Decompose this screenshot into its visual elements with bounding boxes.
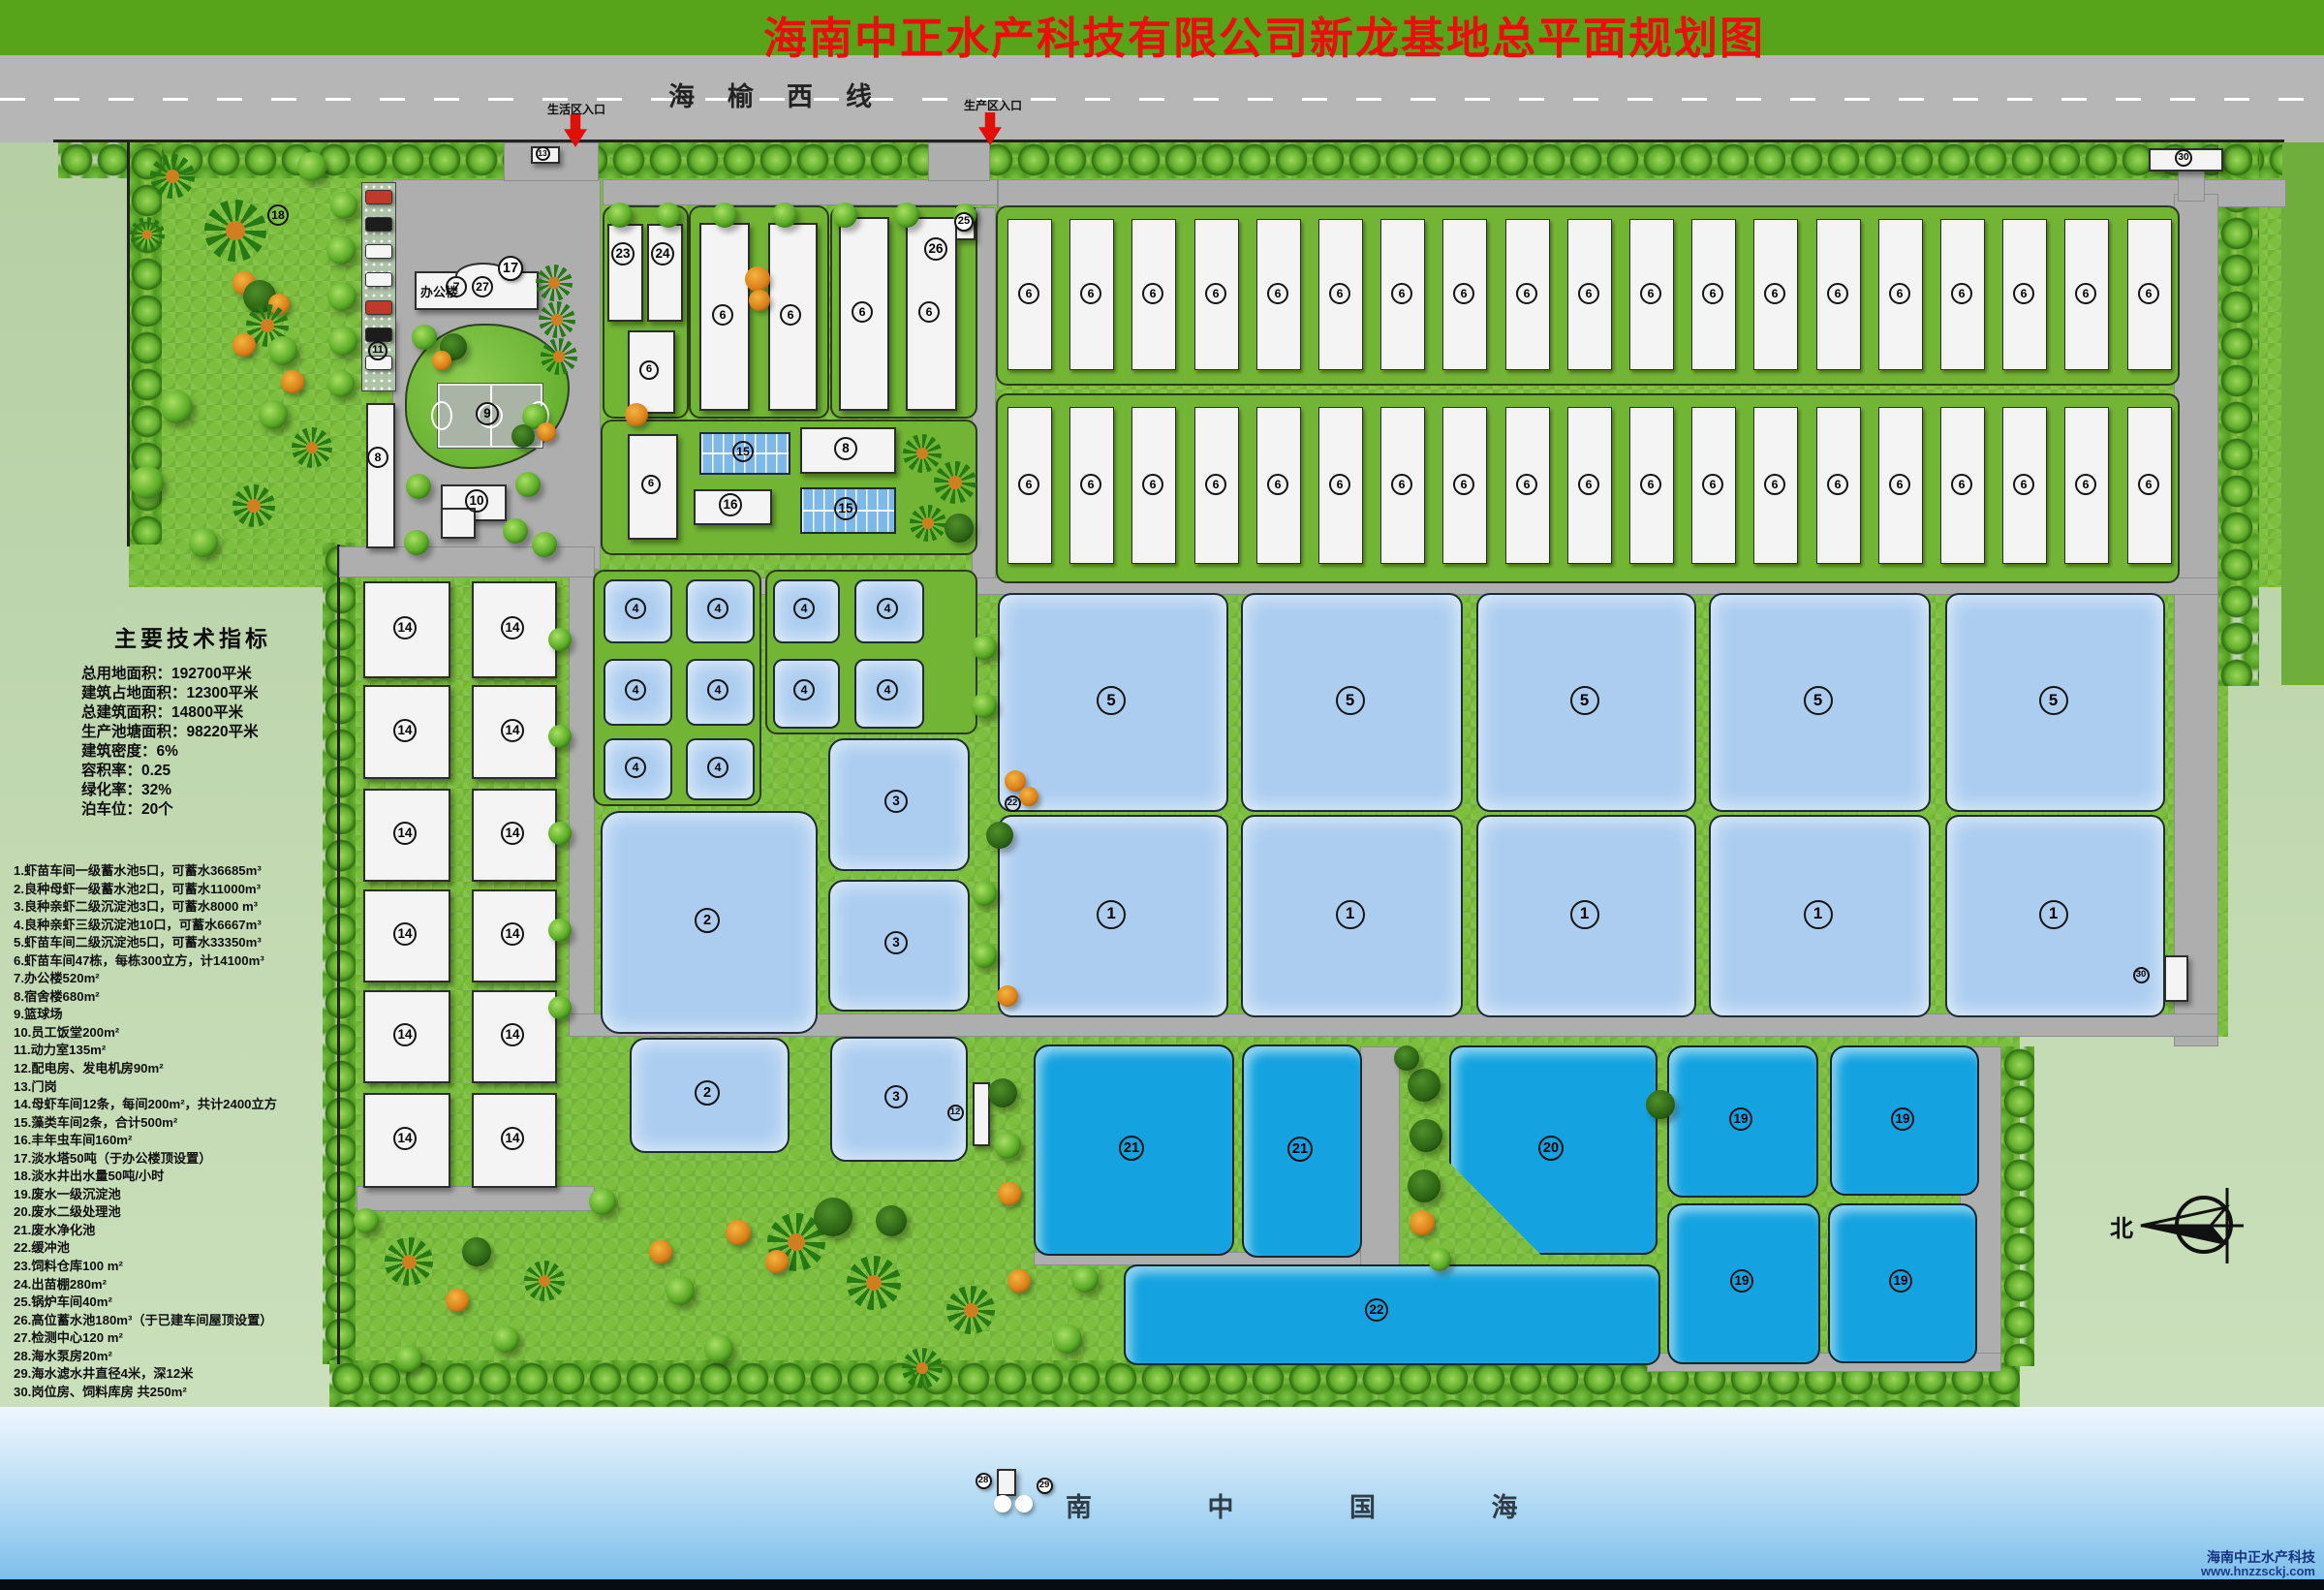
number-marker-5: 5	[1097, 686, 1126, 715]
note-line: 18.淡水井出水量50吨/小时	[14, 1168, 348, 1186]
bush	[328, 327, 357, 356]
parked-car	[365, 190, 392, 204]
number-marker-14: 14	[393, 822, 417, 845]
bush	[548, 725, 572, 748]
number-marker-6: 6	[1080, 283, 1101, 304]
bush	[548, 919, 572, 942]
legend-panel: 主要技术指标 总用地面积：192700平米建筑占地面积：12300平米总建筑面积…	[81, 620, 382, 820]
number-marker-1: 1	[1570, 900, 1599, 929]
bush	[412, 325, 437, 350]
number-marker-19: 19	[1730, 1269, 1753, 1293]
note-line: 21.废水净化池	[14, 1222, 348, 1240]
note-line: 26.高位蓄水池180m³（于已建车间屋顶设置）	[14, 1312, 348, 1330]
note-line: 15.藻类车间2条，合计500m²	[14, 1114, 348, 1133]
number-marker-4: 4	[707, 757, 728, 778]
note-line: 1.虾苗车间一级蓄水池5口，可蓄水36685m³	[14, 862, 348, 881]
number-marker-20: 20	[1538, 1136, 1564, 1161]
number-marker-22: 22	[1365, 1298, 1388, 1322]
bush	[131, 466, 164, 499]
bush	[656, 203, 681, 228]
palm-tree	[536, 265, 573, 301]
number-marker-2: 2	[695, 1080, 720, 1106]
number-marker-8: 8	[367, 447, 388, 468]
note-line: 14.母虾车间12条，每间200m²，共计2400立方	[14, 1096, 348, 1114]
note-line: 19.废水一级沉淀池	[14, 1186, 348, 1204]
palm-tree	[539, 301, 575, 338]
bush	[1053, 1325, 1082, 1354]
orange-shrub	[745, 266, 770, 292]
number-marker-3: 3	[884, 790, 908, 813]
court-left-arc	[431, 401, 452, 430]
orange-shrub	[726, 1220, 751, 1245]
bush	[972, 693, 997, 718]
orange-shrub	[1410, 1210, 1435, 1235]
number-marker-1: 1	[1804, 900, 1833, 929]
note-line: 16.丰年虫车间160m²	[14, 1132, 348, 1150]
orange-shrub	[281, 370, 304, 393]
note-line: 25.锅炉车间40m²	[14, 1294, 348, 1312]
number-marker-6: 6	[1142, 283, 1163, 304]
bush	[160, 390, 193, 423]
number-marker-16: 16	[719, 493, 742, 516]
number-marker-29: 29	[1037, 1478, 1053, 1494]
number-marker-6: 6	[1764, 474, 1785, 495]
notes-list: 1.虾苗车间一级蓄水池5口，可蓄水36685m³2.良种母虾一级蓄水池2口，可蓄…	[14, 862, 348, 1401]
number-marker-15: 15	[732, 441, 754, 462]
note-line: 3.良种亲虾二级沉淀池3口，可蓄水8000 m³	[14, 898, 348, 917]
number-marker-11: 11	[368, 341, 387, 360]
note-line: 8.宿舍楼680m²	[14, 988, 348, 1007]
bush	[268, 336, 297, 365]
internal-road	[928, 142, 990, 181]
bush	[327, 370, 355, 397]
number-marker-10: 10	[465, 489, 488, 513]
bush	[406, 474, 431, 499]
orange-shrub	[432, 351, 451, 370]
number-marker-6: 6	[1391, 283, 1412, 304]
number-marker-27: 27	[472, 276, 493, 297]
dark-bush	[1394, 1045, 1419, 1071]
bush	[189, 528, 218, 557]
number-marker-14: 14	[393, 1023, 417, 1046]
bush	[548, 628, 572, 651]
orange-shrub	[537, 422, 556, 442]
note-line: 22.缓冲池	[14, 1239, 348, 1258]
dark-bush	[1410, 1119, 1442, 1152]
number-marker-6: 6	[1578, 283, 1599, 304]
bush	[972, 635, 997, 660]
number-marker-4: 4	[707, 679, 728, 701]
legend-line: 生产池塘面积：98220平米	[81, 723, 382, 742]
number-marker-28: 28	[976, 1473, 992, 1489]
watermark-url: www.hnzzsckj.com	[2170, 1564, 2315, 1578]
dark-bush	[876, 1205, 907, 1236]
number-marker-4: 4	[793, 679, 815, 701]
palm-tree	[903, 434, 942, 473]
building	[647, 224, 683, 322]
bush	[503, 518, 528, 544]
seawater-well	[1015, 1495, 1033, 1512]
number-marker-6: 6	[1516, 283, 1537, 304]
number-marker-23: 23	[611, 242, 635, 265]
orange-shrub	[997, 985, 1018, 1007]
number-marker-5: 5	[2039, 686, 2068, 715]
number-marker-3: 3	[884, 1085, 908, 1108]
number-marker-6: 6	[2013, 474, 2034, 495]
parked-car	[365, 244, 392, 259]
number-marker-6: 6	[1764, 283, 1785, 304]
bush	[404, 530, 429, 555]
internal-road	[1360, 1046, 1400, 1265]
number-marker-14: 14	[501, 922, 524, 946]
legend-lines: 总用地面积：192700平米建筑占地面积：12300平米总建筑面积：14800平…	[81, 665, 382, 820]
number-marker-8: 8	[834, 437, 857, 460]
internal-road	[339, 546, 595, 577]
building	[366, 403, 395, 548]
number-marker-6: 6	[1951, 474, 1972, 495]
road-center-dashes	[0, 98, 2324, 101]
number-marker-9: 9	[476, 402, 499, 425]
number-marker-6: 6	[2138, 283, 2159, 304]
number-marker-6: 6	[1889, 283, 1910, 304]
tree-row	[2218, 141, 2259, 686]
number-marker-6: 6	[1267, 474, 1288, 495]
note-line: 2.良种母虾一级蓄水池2口，可蓄水11000m³	[14, 881, 348, 899]
orange-shrub	[749, 290, 770, 311]
palm-tree	[204, 200, 266, 262]
page-title: 海南中正水产科技有限公司新龙基地总平面规划图	[601, 3, 1928, 66]
note-line: 28.海水泵房20m²	[14, 1348, 348, 1366]
road-name-label: 海榆西线	[668, 76, 905, 113]
number-marker-6: 6	[780, 304, 801, 326]
orange-shrub	[625, 403, 648, 426]
dark-bush	[1408, 1069, 1441, 1102]
number-marker-6: 6	[1329, 474, 1350, 495]
number-marker-30: 30	[2175, 149, 2192, 167]
number-marker-14: 14	[393, 616, 417, 639]
note-line: 12.配电房、发电机房90m²	[14, 1060, 348, 1078]
building	[2164, 955, 2188, 1002]
number-marker-6: 6	[1453, 474, 1474, 495]
compass-north-label: 北	[2110, 1216, 2133, 1242]
number-marker-6: 6	[1640, 474, 1661, 495]
number-marker-22: 22	[1005, 795, 1021, 812]
number-marker-6: 6	[1267, 283, 1288, 304]
orange-shrub	[1019, 787, 1038, 806]
bush	[589, 1188, 616, 1215]
palm-tree	[232, 484, 275, 527]
number-marker-30: 30	[2133, 967, 2150, 983]
orange-shrub	[232, 333, 256, 357]
number-marker-6: 6	[639, 360, 659, 380]
note-line: 23.饲料仓库100 m²	[14, 1258, 348, 1276]
number-marker-6: 6	[1205, 283, 1226, 304]
bush	[894, 203, 919, 228]
number-marker-2: 2	[695, 908, 720, 933]
number-marker-3: 3	[884, 931, 908, 954]
bush	[330, 192, 357, 219]
parked-car	[365, 300, 392, 315]
number-marker-14: 14	[501, 822, 524, 845]
note-line: 13.门岗	[14, 1078, 348, 1097]
note-line: 30.岗位房、饲料库房 共250m²	[14, 1384, 348, 1402]
bush	[326, 235, 356, 265]
number-marker-5: 5	[1804, 686, 1833, 715]
internal-road	[2174, 194, 2218, 1046]
north-compass-icon: 北	[2102, 1184, 2247, 1267]
number-marker-13: 13	[536, 146, 550, 161]
number-marker-4: 4	[625, 679, 646, 701]
palm-tree	[385, 1237, 433, 1286]
orange-shrub	[649, 1240, 672, 1263]
number-marker-6: 6	[1702, 283, 1723, 304]
number-marker-14: 14	[501, 719, 524, 742]
internal-road	[569, 570, 595, 1037]
bush	[607, 203, 633, 228]
number-marker-6: 6	[1578, 474, 1599, 495]
number-marker-6: 6	[2075, 474, 2096, 495]
number-marker-15: 15	[834, 497, 857, 520]
number-marker-4: 4	[707, 598, 728, 619]
number-marker-6: 6	[1640, 283, 1661, 304]
palm-tree	[847, 1256, 901, 1310]
note-line: 7.办公楼520m²	[14, 970, 348, 988]
number-marker-21: 21	[1119, 1136, 1144, 1161]
number-marker-6: 6	[1453, 283, 1474, 304]
orange-shrub	[998, 1182, 1021, 1205]
bush	[259, 400, 288, 429]
building	[607, 224, 643, 322]
number-marker-1: 1	[1336, 900, 1365, 929]
palm-tree	[524, 1261, 565, 1301]
number-marker-6: 6	[1516, 474, 1537, 495]
legend-line: 容积率：0.25	[81, 762, 382, 781]
note-line: 4.良种亲虾三级沉淀池10口，可蓄水6667m³	[14, 917, 348, 935]
site-plan-canvas: 海南中正水产科技有限公司新龙基地总平面规划图 海榆西线 生活区入口 生产区入口 …	[0, 0, 2324, 1590]
palm-tree	[130, 217, 165, 252]
number-marker-14: 14	[393, 922, 417, 946]
number-marker-12: 12	[947, 1105, 964, 1121]
internal-road	[356, 1186, 595, 1211]
entrance-production-label: 生产区入口	[964, 97, 1022, 113]
bush	[492, 1325, 519, 1353]
palm-tree	[934, 461, 976, 504]
bush	[994, 1132, 1021, 1159]
bush	[712, 203, 737, 228]
number-marker-5: 5	[1336, 686, 1365, 715]
number-marker-6: 6	[852, 301, 873, 323]
building	[441, 508, 476, 539]
number-marker-19: 19	[1889, 1269, 1912, 1293]
number-marker-1: 1	[2039, 900, 2068, 929]
bush	[972, 881, 997, 906]
note-line: 9.篮球场	[14, 1006, 348, 1024]
palm-tree	[902, 1348, 943, 1388]
parked-car	[365, 327, 392, 342]
number-marker-6: 6	[712, 304, 733, 326]
number-marker-6: 6	[1080, 474, 1101, 495]
number-marker-6: 6	[1018, 283, 1039, 304]
number-marker-6: 6	[1889, 474, 1910, 495]
bush	[297, 152, 326, 181]
number-marker-24: 24	[651, 242, 674, 265]
note-line: 6.虾苗车间47栋，每栋300立方，计14100m³	[14, 952, 348, 971]
boundary-fence	[53, 140, 2284, 142]
number-marker-19: 19	[1891, 1107, 1914, 1131]
dark-pond	[1124, 1264, 1660, 1365]
bush	[1071, 1265, 1099, 1293]
note-line: 5.虾苗车间二级沉淀池5口，可蓄水33350m³	[14, 934, 348, 952]
legend-line: 绿化率：32%	[81, 781, 382, 800]
bush	[548, 996, 572, 1019]
palm-tree	[292, 427, 332, 468]
legend-line: 泊车位：20个	[81, 800, 382, 820]
bush	[832, 203, 857, 228]
legend-line: 总用地面积：192700平米	[81, 665, 382, 684]
number-marker-4: 4	[877, 679, 898, 701]
dark-bush	[511, 424, 535, 448]
number-marker-26: 26	[924, 237, 947, 261]
number-marker-6: 6	[2075, 283, 2096, 304]
number-marker-14: 14	[501, 1127, 524, 1150]
number-marker-6: 6	[641, 475, 661, 494]
tree-row	[2001, 1046, 2034, 1366]
note-line: 27.检测中心120 m²	[14, 1329, 348, 1348]
bush	[704, 1334, 733, 1363]
internal-road	[603, 179, 998, 205]
number-marker-4: 4	[625, 757, 646, 778]
number-marker-14: 14	[393, 1127, 417, 1150]
orange-shrub	[1007, 1269, 1031, 1293]
note-line: 11.动力室135m²	[14, 1042, 348, 1060]
number-marker-7: 7	[446, 276, 467, 297]
number-marker-6: 6	[2013, 283, 2034, 304]
parked-car	[365, 272, 392, 287]
parked-car	[365, 217, 392, 232]
number-marker-6: 6	[1827, 283, 1848, 304]
boundary-fence	[127, 140, 130, 546]
number-marker-6: 6	[1018, 474, 1039, 495]
bush	[972, 943, 997, 968]
bush	[354, 1208, 379, 1233]
bush	[515, 472, 541, 497]
note-line: 20.废水二级处理池	[14, 1203, 348, 1222]
number-marker-1: 1	[1097, 900, 1126, 929]
bush	[1428, 1248, 1451, 1271]
number-marker-6: 6	[1205, 474, 1226, 495]
palm-tree	[541, 338, 577, 375]
legend-title: 主要技术指标	[114, 620, 382, 653]
number-marker-6: 6	[1329, 283, 1350, 304]
orange-shrub	[446, 1289, 469, 1312]
number-marker-6: 6	[1142, 474, 1163, 495]
internal-road	[998, 179, 2286, 207]
number-marker-17: 17	[498, 256, 523, 281]
number-marker-6: 6	[1391, 474, 1412, 495]
legend-line: 总建筑面积：14800平米	[81, 703, 382, 723]
dark-bush	[945, 514, 974, 543]
orange-shrub	[765, 1250, 789, 1273]
dark-bush	[462, 1237, 491, 1266]
number-marker-4: 4	[625, 598, 646, 619]
number-marker-6: 6	[918, 301, 940, 323]
bush	[532, 532, 557, 557]
number-marker-6: 6	[2138, 474, 2159, 495]
palm-tree	[910, 505, 946, 542]
tree-row	[58, 141, 2282, 178]
number-marker-6: 6	[1951, 283, 1972, 304]
bush	[666, 1276, 695, 1305]
note-line: 29.海水滤水井直径4米，深12米	[14, 1365, 348, 1384]
palm-tree	[946, 1286, 995, 1334]
note-line: 10.员工饭堂200m²	[14, 1024, 348, 1043]
building	[997, 1469, 1016, 1496]
number-marker-14: 14	[393, 719, 417, 742]
number-marker-4: 4	[877, 598, 898, 619]
number-marker-19: 19	[1729, 1107, 1752, 1131]
number-marker-14: 14	[501, 616, 524, 639]
bush	[327, 282, 356, 311]
legend-line: 建筑占地面积：12300平米	[81, 684, 382, 703]
number-marker-14: 14	[501, 1023, 524, 1046]
seawater-well	[994, 1495, 1011, 1512]
east-field	[2281, 142, 2324, 685]
dark-bush	[1408, 1169, 1441, 1202]
sea-name-label: 南 中 国 海	[1066, 1486, 1572, 1524]
bottom-border-strip	[0, 1579, 2324, 1590]
number-marker-5: 5	[1570, 686, 1599, 715]
note-line: 24.出苗棚280m²	[14, 1276, 348, 1294]
dark-bush	[986, 822, 1013, 849]
dark-bush	[814, 1198, 852, 1236]
note-line: 17.淡水塔50吨（于办公楼顶设置）	[14, 1150, 348, 1169]
dark-bush	[988, 1078, 1017, 1107]
bush	[395, 1345, 422, 1372]
number-marker-18: 18	[267, 204, 289, 226]
number-marker-6: 6	[1702, 474, 1723, 495]
dark-bush	[1646, 1090, 1675, 1119]
number-marker-4: 4	[793, 598, 815, 619]
number-marker-6: 6	[1827, 474, 1848, 495]
legend-line: 建筑密度：6%	[81, 742, 382, 762]
palm-tree	[150, 154, 195, 199]
number-marker-21: 21	[1287, 1137, 1313, 1162]
bush	[772, 203, 797, 228]
number-marker-25: 25	[954, 212, 974, 232]
bush	[548, 822, 572, 845]
